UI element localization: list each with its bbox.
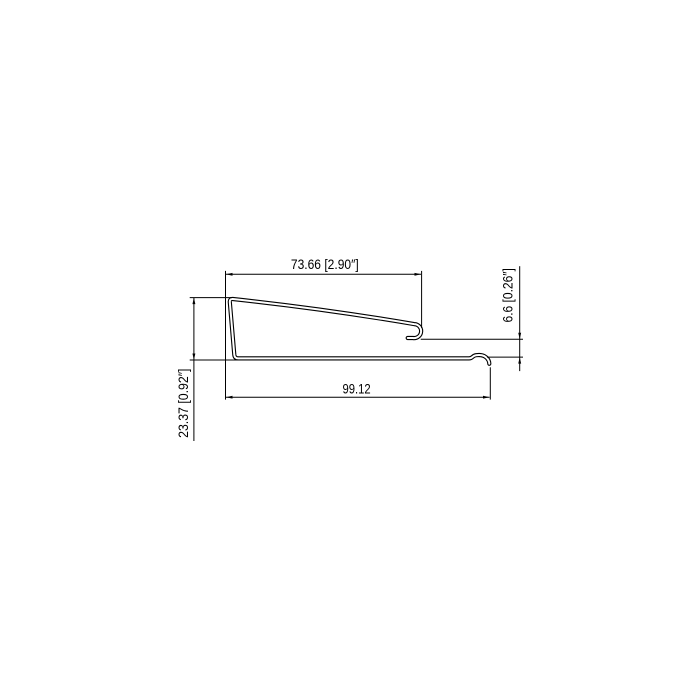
svg-text:6.6 [0.26″]: 6.6 [0.26″] [500,268,516,322]
svg-text:99.12: 99.12 [343,380,371,396]
svg-text:23.37 [0.92″]: 23.37 [0.92″] [175,369,191,438]
svg-text:73.66 [2.90″]: 73.66 [2.90″] [291,256,359,272]
